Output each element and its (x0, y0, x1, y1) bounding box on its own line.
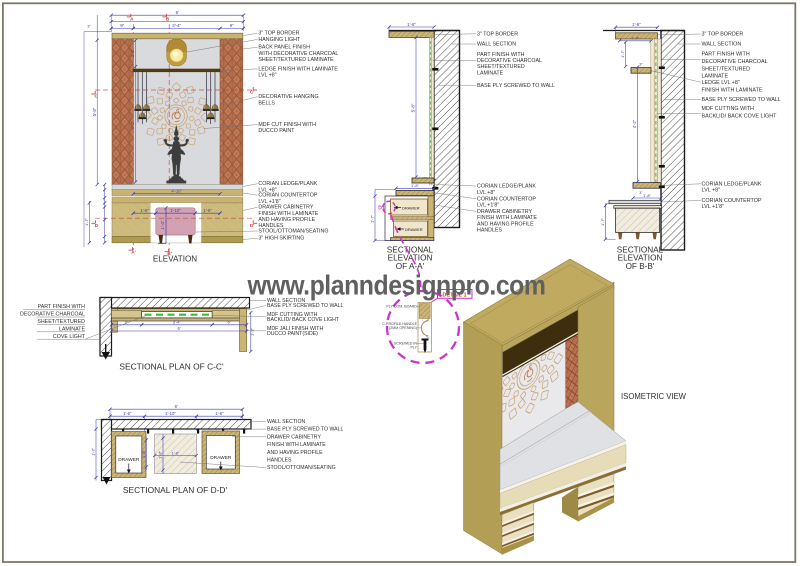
svg-text:1'-7": 1'-7" (84, 217, 89, 226)
svg-text:1'-6": 1'-6" (123, 411, 132, 416)
svg-text:4'-2": 4'-2" (130, 120, 135, 129)
svg-text:1'-3": 1'-3" (158, 450, 163, 459)
svg-text:1'-6": 1'-6" (215, 411, 224, 416)
svg-text:HANDLES: HANDLES (477, 228, 502, 234)
svg-text:DRAWER CABINETRY: DRAWER CABINETRY (267, 434, 321, 440)
svg-text:BASE PLY SCREWED TO WALL: BASE PLY SCREWED TO WALL (702, 97, 781, 103)
svg-text:(2MM OPENING): (2MM OPENING) (389, 326, 417, 330)
svg-text:5'-8": 5'-8" (92, 107, 97, 116)
svg-text:6": 6" (228, 320, 232, 325)
svg-text:STOOL/OTTOMAN/SEATING: STOOL/OTTOMAN/SEATING (258, 228, 328, 234)
svg-text:FINISH WITH LAMINATE: FINISH WITH LAMINATE (477, 215, 537, 221)
svg-text:WALL SECTION: WALL SECTION (267, 419, 305, 425)
svg-text:DRAWER: DRAWER (118, 457, 140, 463)
svg-text:LAMINATE: LAMINATE (59, 326, 86, 332)
svg-text:LVL +1'8": LVL +1'8" (702, 204, 725, 210)
svg-text:AND HAVING PROFILE: AND HAVING PROFILE (267, 450, 323, 456)
svg-text:LVL +8": LVL +8" (258, 73, 276, 79)
svg-text:DRAWER CABINETRY: DRAWER CABINETRY (258, 205, 314, 211)
svg-text:BACKLID/ BACK COVE LIGHT: BACKLID/ BACK COVE LIGHT (702, 113, 778, 119)
svg-text:STOOL/OTTOMAN/SEATING: STOOL/OTTOMAN/SEATING (267, 465, 336, 471)
svg-text:D': D' (250, 223, 254, 228)
svg-text:DECORATIVE HANGING: DECORATIVE HANGING (258, 94, 318, 100)
svg-text:LAMINATE: LAMINATE (702, 74, 729, 80)
svg-text:3" TOP BORDER: 3" TOP BORDER (477, 31, 518, 37)
svg-text:DECORATIVE CHARCOAL: DECORATIVE CHARCOAL (702, 59, 768, 65)
svg-text:1'-2": 1'-2" (130, 48, 135, 57)
svg-text:1'-8": 1'-8" (172, 450, 181, 455)
svg-text:LVL +8": LVL +8" (702, 188, 721, 194)
svg-text:FINISH WITH LAMINATE: FINISH WITH LAMINATE (267, 442, 326, 448)
svg-text:AND HAVING PROFILE: AND HAVING PROFILE (477, 221, 534, 227)
svg-text:3" HIGH SKIRTING: 3" HIGH SKIRTING (258, 236, 304, 242)
svg-text:DUCCO PAINT(SIDE): DUCCO PAINT(SIDE) (267, 331, 318, 337)
svg-text:SHEET/TEXTURED: SHEET/TEXTURED (702, 67, 751, 73)
svg-text:6': 6' (177, 326, 180, 331)
svg-text:1'-8": 1'-8" (643, 193, 652, 198)
svg-text:HANDLES: HANDLES (267, 458, 292, 464)
svg-text:3" TOP BORDER: 3" TOP BORDER (702, 32, 744, 38)
svg-text:CORIAN LEDGE/PLANK: CORIAN LEDGE/PLANK (258, 181, 317, 187)
svg-text:CORIAN LEDGE/PLANK: CORIAN LEDGE/PLANK (702, 181, 762, 187)
svg-text:6': 6' (175, 404, 178, 409)
svg-text:LVL +1'8": LVL +1'8" (477, 203, 499, 209)
svg-text:SHEET/TEXTURED: SHEET/TEXTURED (37, 319, 85, 325)
svg-text:DRAWER: DRAWER (210, 455, 232, 461)
svg-text:1'-3": 1'-3" (631, 36, 640, 41)
svg-text:A': A' (131, 250, 135, 255)
svg-text:1'-8": 1'-8" (411, 183, 420, 188)
svg-text:1'-4": 1'-4" (160, 220, 165, 230)
svg-text:DRAWER: DRAWER (402, 205, 420, 210)
svg-text:CORIAN COUNTERTOP: CORIAN COUNTERTOP (477, 196, 536, 202)
svg-text:WITH DECORATIVE CHARCOAL: WITH DECORATIVE CHARCOAL (258, 51, 338, 57)
svg-text:PLY/COM. BOARD: PLY/COM. BOARD (386, 305, 417, 309)
svg-text:ELEVATION: ELEVATION (153, 255, 197, 264)
svg-text:SECTIONAL PLAN OF C-C': SECTIONAL PLAN OF C-C' (119, 362, 224, 372)
svg-text:MDF CUT FINISH WITH: MDF CUT FINISH WITH (258, 122, 316, 128)
svg-text:AND HAVING PROFILE: AND HAVING PROFILE (258, 217, 315, 223)
svg-text:LEDGE LVL +8": LEDGE LVL +8" (702, 80, 740, 86)
svg-text:BELLS: BELLS (258, 100, 275, 106)
svg-text:1'-3": 1'-3" (249, 327, 254, 336)
svg-text:1'-10": 1'-10" (165, 411, 176, 416)
svg-text:6': 6' (176, 10, 179, 15)
svg-text:CORIAN COUNTERTOP: CORIAN COUNTERTOP (702, 198, 762, 204)
svg-text:WALL SECTION: WALL SECTION (477, 42, 516, 48)
svg-text:SHEET/TEXTURED LAMINATE: SHEET/TEXTURED LAMINATE (258, 57, 334, 63)
svg-text:PART FINISH WITH: PART FINISH WITH (702, 51, 750, 57)
svg-text:DECORATIVE CHARCOAL: DECORATIVE CHARCOAL (20, 312, 85, 318)
svg-text:OF B-B': OF B-B' (626, 262, 655, 271)
svg-text:4'-10": 4'-10" (171, 189, 182, 194)
svg-text:1'-6": 1'-6" (632, 22, 641, 27)
svg-text:www.planndesignpro.com: www.planndesignpro.com (247, 270, 546, 301)
svg-text:C': C' (250, 90, 254, 95)
svg-text:DRAWER: DRAWER (405, 227, 423, 232)
svg-text:3'-4": 3'-4" (173, 320, 182, 325)
svg-text:FINISH WITH LAMINATE: FINISH WITH LAMINATE (702, 87, 763, 93)
svg-text:DUCCO PAINT: DUCCO PAINT (258, 128, 295, 134)
svg-text:SECTIONAL PLAN OF D-D': SECTIONAL PLAN OF D-D' (123, 485, 228, 495)
svg-text:1'-6": 1'-6" (140, 208, 149, 213)
svg-text:1'-7": 1'-7" (370, 214, 375, 223)
svg-text:BASE PLY SCREWED TO WALL: BASE PLY SCREWED TO WALL (267, 427, 344, 433)
svg-text:SHEET/TEXTURED: SHEET/TEXTURED (477, 64, 525, 70)
svg-text:D1: D1 (378, 206, 385, 212)
svg-text:ISOMETRIC VIEW: ISOMETRIC VIEW (621, 391, 687, 401)
svg-text:PLY: PLY (410, 346, 417, 350)
svg-text:DECORATIVE CHARCOAL: DECORATIVE CHARCOAL (477, 58, 542, 64)
svg-text:1'-6": 1'-6" (141, 449, 146, 458)
svg-text:WALL SECTION: WALL SECTION (702, 42, 742, 48)
svg-text:1'-7": 1'-7" (600, 217, 605, 226)
svg-text:1'-7": 1'-7" (620, 50, 625, 58)
svg-text:FINISH WITH LAMINATE: FINISH WITH LAMINATE (258, 211, 318, 217)
svg-text:COVE LIGHT: COVE LIGHT (53, 334, 86, 340)
svg-text:1'-10": 1'-10" (170, 208, 181, 213)
svg-text:3" TOP BORDER: 3" TOP BORDER (258, 31, 299, 37)
svg-text:3'-4": 3'-4" (172, 23, 181, 28)
svg-text:BACKLID/ BACK COVE LIGHT: BACKLID/ BACK COVE LIGHT (267, 317, 340, 323)
svg-text:BASE PLY SCREWED TO WALL: BASE PLY SCREWED TO WALL (267, 303, 344, 309)
svg-text:9": 9" (120, 23, 124, 28)
svg-text:BASE PLY SCREWED TO WALL: BASE PLY SCREWED TO WALL (477, 83, 555, 89)
svg-text:LEDGE FINISH WITH LAMINATE: LEDGE FINISH WITH LAMINATE (258, 66, 338, 72)
svg-text:CORIAN LEDGE/PLANK: CORIAN LEDGE/PLANK (477, 184, 536, 190)
svg-text:5'-8": 5'-8" (411, 103, 416, 112)
svg-text:4'-2": 4'-2" (632, 119, 637, 128)
svg-text:9": 9" (230, 23, 234, 28)
svg-text:LAMINATE: LAMINATE (477, 70, 504, 76)
svg-text:DRAWER CABINETRY: DRAWER CABINETRY (477, 209, 533, 215)
svg-text:HANGING LIGHT: HANGING LIGHT (258, 37, 301, 43)
svg-text:1'-3": 1'-3" (91, 447, 96, 456)
svg-text:1'-6": 1'-6" (407, 22, 416, 27)
svg-text:PART FINISH WITH: PART FINISH WITH (38, 304, 86, 310)
svg-text:BACK PANEL FINISH: BACK PANEL FINISH (258, 45, 310, 51)
svg-text:CORIAN COUNTERTOP: CORIAN COUNTERTOP (258, 193, 317, 199)
svg-text:1'-6": 1'-6" (203, 208, 212, 213)
svg-text:LVL +8": LVL +8" (477, 190, 495, 196)
svg-text:PART FINISH WITH: PART FINISH WITH (477, 52, 525, 58)
svg-text:MDF CUTTING WITH: MDF CUTTING WITH (702, 106, 755, 112)
